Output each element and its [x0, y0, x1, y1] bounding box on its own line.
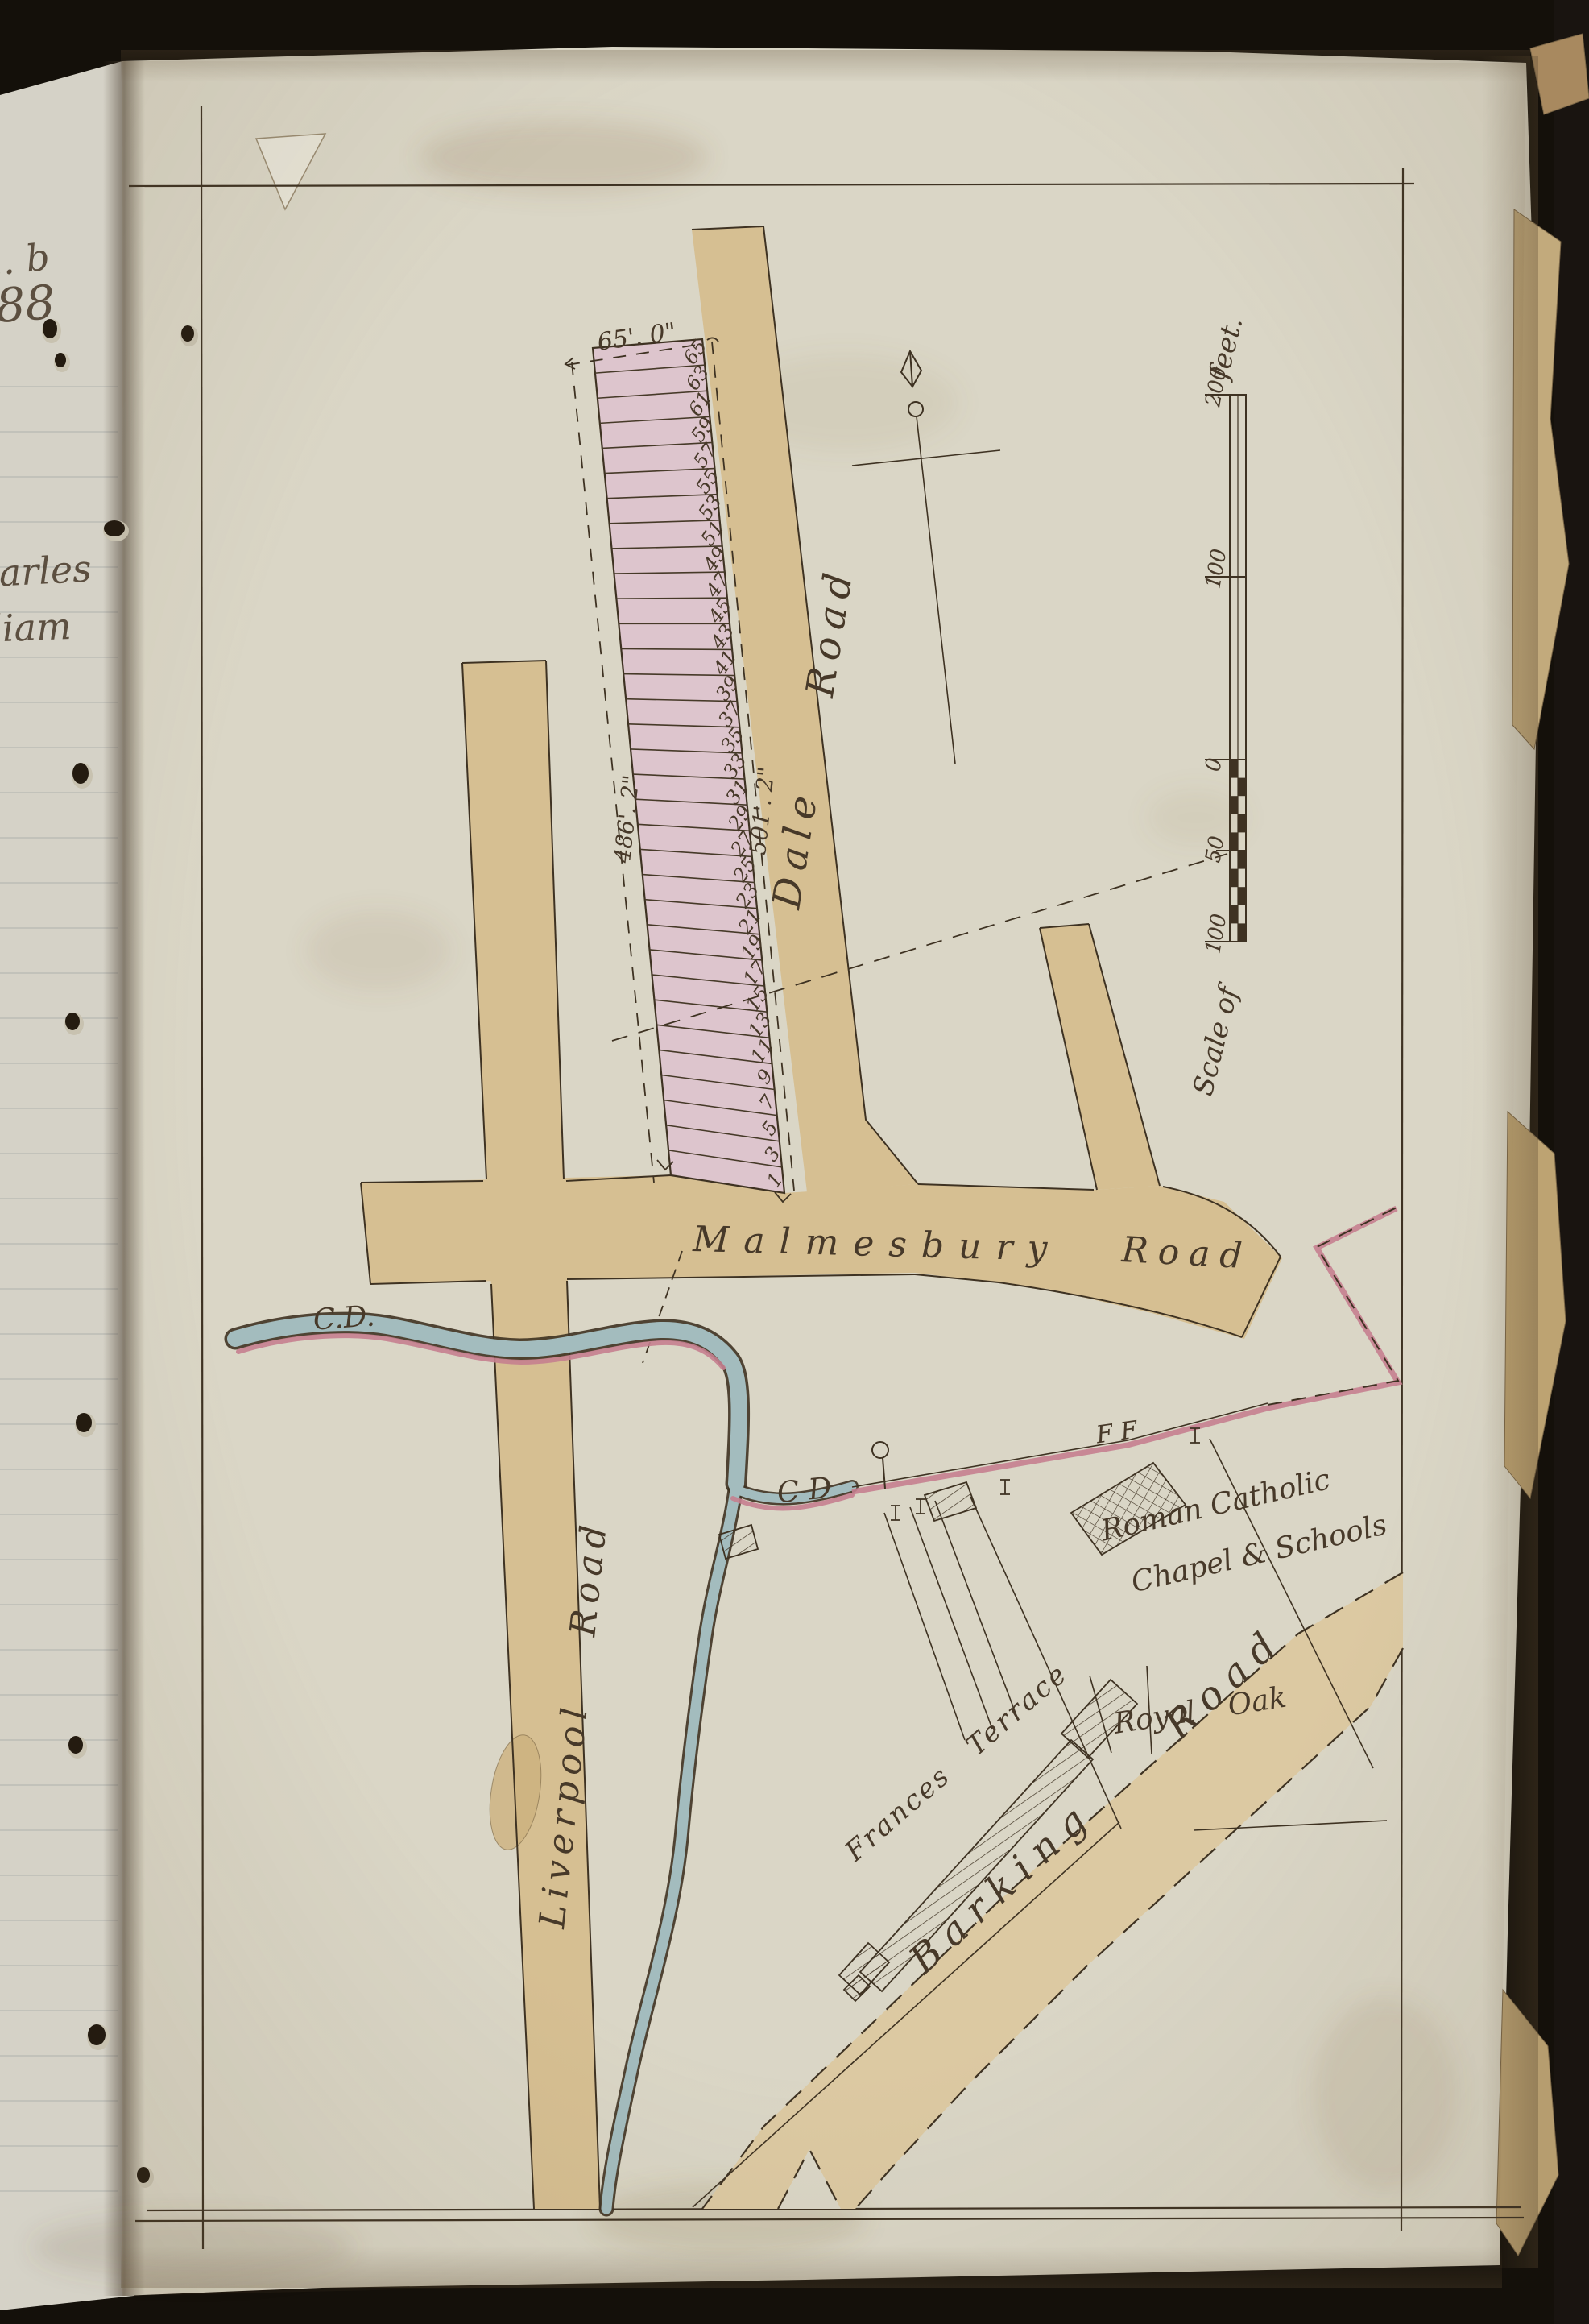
- page-vignette: [122, 61, 1526, 2296]
- handwriting-fragment-2: 88: [0, 275, 57, 333]
- label-ff: F F: [1094, 1416, 1140, 1450]
- label-cd-lower: C D: [776, 1472, 834, 1510]
- worm-hole: [88, 2024, 106, 2045]
- handwriting-fragment-4: lliam: [0, 604, 72, 651]
- book-cover-edge: [1554, 0, 1589, 2324]
- worm-hole: [65, 1013, 80, 1030]
- worm-hole: [55, 353, 66, 367]
- left-page-ruled-lines: [0, 387, 118, 2191]
- worm-hole: [68, 1736, 83, 1754]
- handwriting-fragment-3: harles: [0, 546, 93, 595]
- scanned-map-page: 1357911131517192123252729313335373941434…: [0, 0, 1589, 2324]
- worm-hole: [72, 763, 89, 784]
- label-cd-upper: C.D.: [312, 1299, 375, 1336]
- worm-hole: [104, 520, 125, 536]
- worm-hole: [76, 1413, 92, 1432]
- road-label-malmesbury-road: Road: [1119, 1229, 1252, 1277]
